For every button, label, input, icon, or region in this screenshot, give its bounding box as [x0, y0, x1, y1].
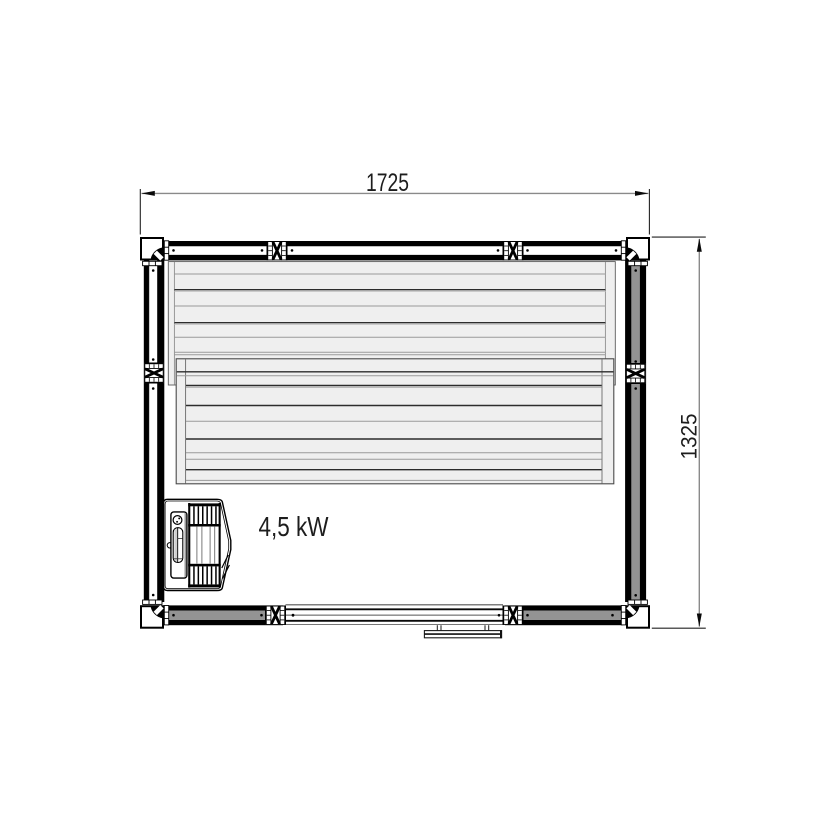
svg-text:1325: 1325	[676, 414, 701, 460]
svg-text:1725: 1725	[366, 169, 409, 197]
svg-text:4,5 kW: 4,5 kW	[259, 511, 329, 542]
